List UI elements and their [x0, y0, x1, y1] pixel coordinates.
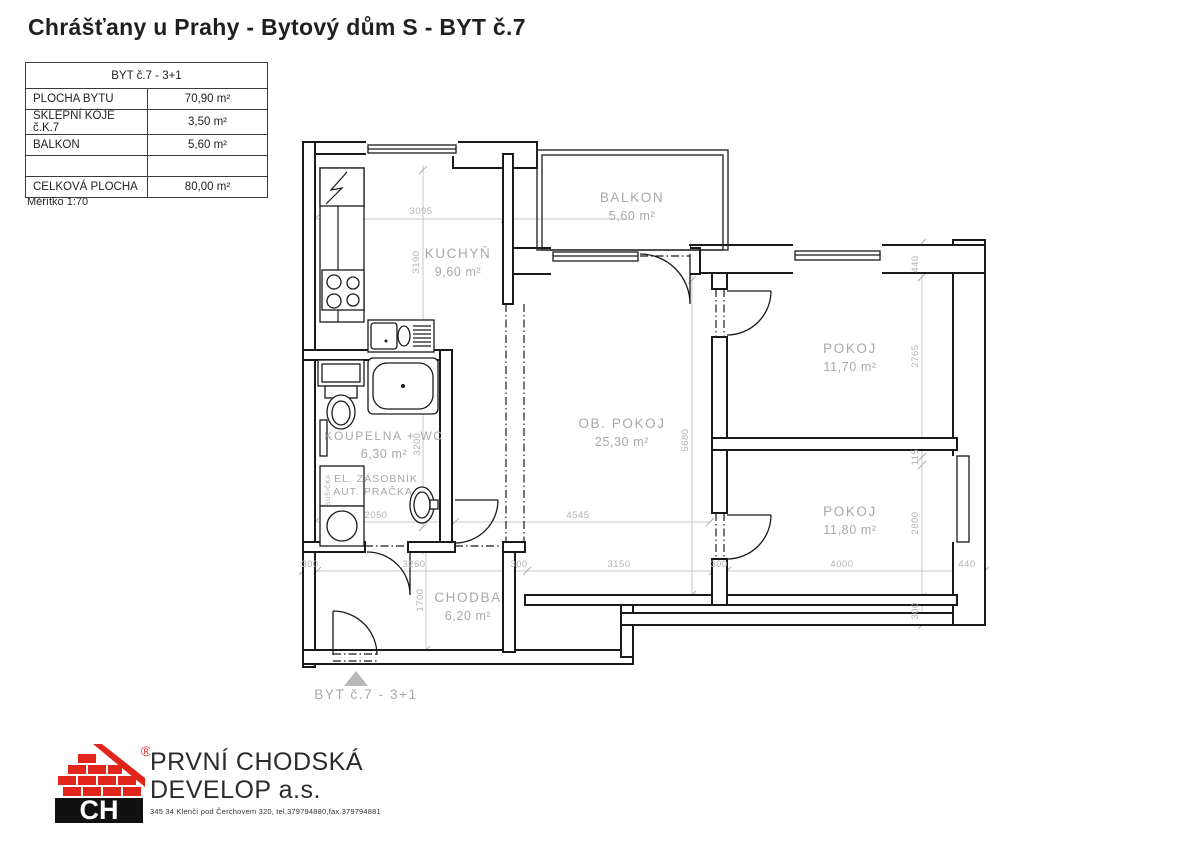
company-name-line2: DEVELOP a.s.	[150, 776, 381, 804]
dim-label: 2050	[364, 510, 387, 521]
fridge	[320, 168, 364, 206]
dim-label: 3095	[409, 206, 432, 217]
equipment-label: EL. ZÁSOBNÍK	[334, 472, 418, 485]
room-area: 9,60 m²	[435, 265, 482, 279]
washbasin-tap	[430, 500, 438, 509]
dim-label: 1700	[415, 588, 426, 611]
dim-label: 2765	[910, 344, 921, 367]
room-label: CHODBA	[434, 590, 501, 605]
dim-label: 440	[910, 255, 921, 272]
entrance-door	[333, 611, 377, 655]
windows	[366, 140, 970, 542]
room1-door	[727, 291, 771, 335]
dim-label: 440	[958, 559, 975, 570]
dim-label: 5680	[680, 428, 691, 451]
company-logo: CH ®	[55, 742, 150, 824]
room-label: KUCHYŇ	[425, 246, 492, 261]
dim-label: 3150	[607, 559, 630, 570]
dim-label: 4545	[566, 510, 589, 521]
dim-label: 3200	[412, 432, 423, 455]
entrance-label: BYT č.7 - 3+1	[314, 687, 417, 702]
room-area: 11,80 m²	[823, 523, 876, 537]
room-area: 6,30 m²	[361, 447, 408, 461]
room-area: 25,30 m²	[595, 435, 649, 449]
room2-window	[957, 456, 969, 542]
company-name-line1: PRVNÍ CHODSKÁ	[150, 748, 381, 776]
room-label: KOUPELNA + WC	[324, 429, 443, 443]
dim-label: 300	[510, 559, 527, 570]
company-name-block: PRVNÍ CHODSKÁ DEVELOP a.s. 345 34 Klenčí…	[150, 748, 381, 816]
floorplan-drawing: KUCHYŇ 9,60 m² BALKON 5,60 m² OB. POKOJ …	[0, 0, 1200, 848]
floorplan-page: Chrášťany u Prahy - Bytový dům S - BYT č…	[0, 0, 1200, 848]
room-label: POKOJ	[823, 341, 877, 356]
room-area: 11,70 m²	[823, 360, 876, 374]
dim-label: 4000	[830, 559, 853, 570]
dim-label: 300	[910, 602, 921, 619]
room-label: OB. POKOJ	[578, 416, 665, 431]
room-label: BALKON	[600, 190, 664, 205]
dim-label: 300	[301, 559, 318, 570]
brick-house-icon	[58, 744, 145, 796]
room-label: POKOJ	[823, 504, 877, 519]
dim-label: 115	[910, 449, 921, 466]
dim-label: 300	[710, 559, 727, 570]
entrance-arrow	[344, 671, 368, 686]
logo-letters: CH	[80, 795, 119, 824]
dryer-label: SUŠIČKA	[323, 474, 332, 506]
company-address: 345 34 Klenčí pod Čerchovem 320, tel.379…	[150, 807, 381, 816]
equipment-label: AUT. PRAČKA	[333, 485, 413, 498]
dim-label: 3260	[402, 559, 425, 570]
room-area: 6,20 m²	[445, 609, 492, 623]
dim-label: 3190	[411, 250, 422, 273]
entrance-marker: BYT č.7 - 3+1	[314, 671, 417, 702]
room-area: 5,60 m²	[609, 209, 656, 223]
registered-mark: ®	[141, 743, 150, 759]
company-logo-block: CH ®	[55, 742, 150, 829]
room2-door	[727, 515, 771, 559]
dim-label: 2800	[910, 511, 921, 534]
